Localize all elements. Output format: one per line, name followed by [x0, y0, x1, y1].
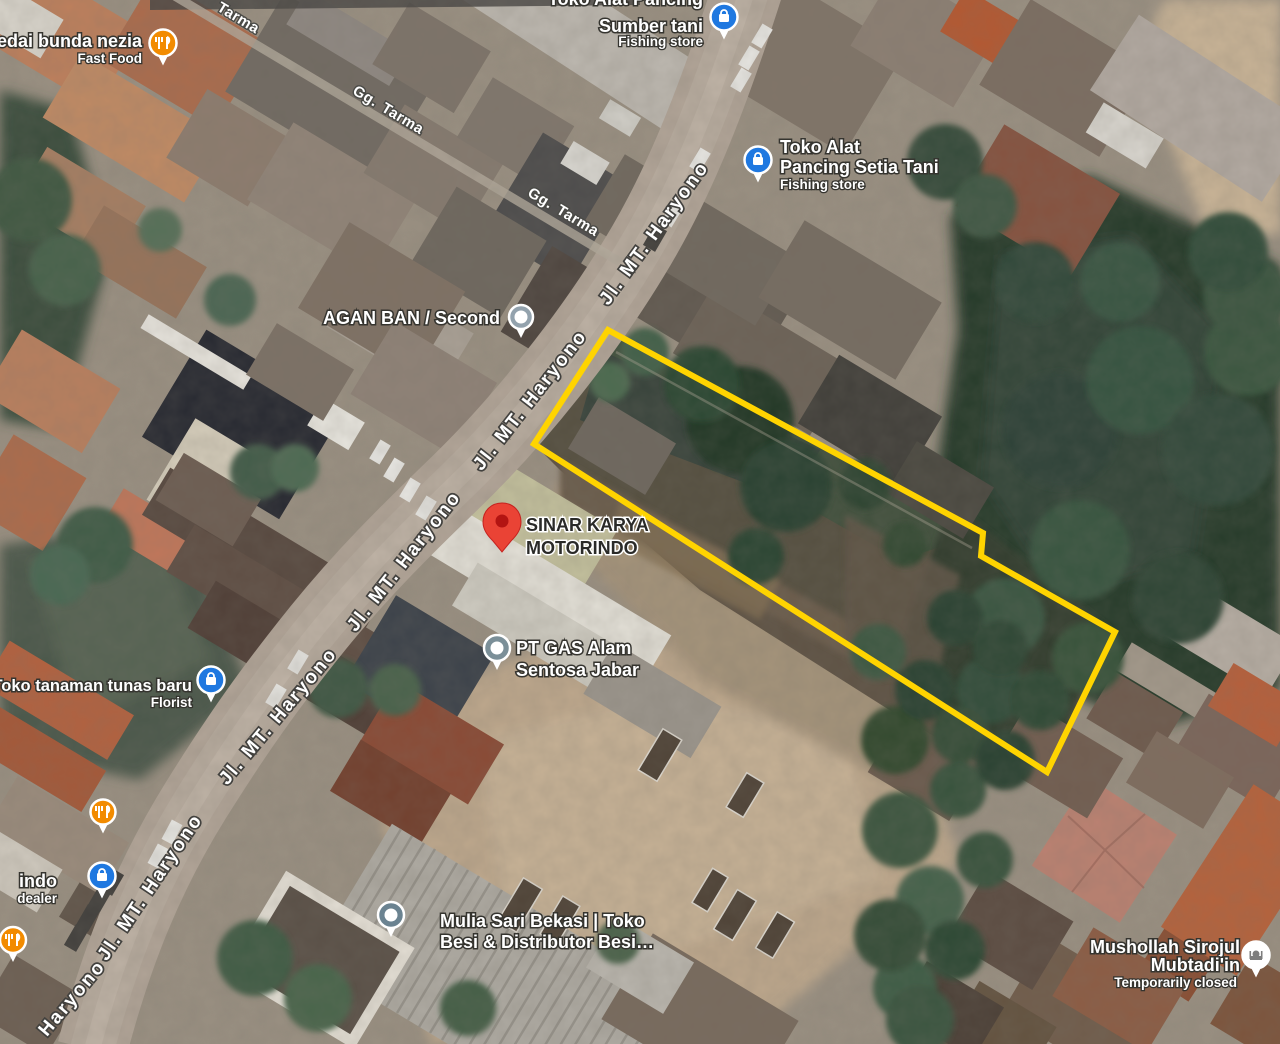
svg-text:Kedai bunda nezia: Kedai bunda nezia — [0, 31, 143, 51]
svg-text:Fast Food: Fast Food — [78, 51, 143, 66]
svg-text:Toko Alat Pancing: Toko Alat Pancing — [548, 0, 703, 9]
svg-text:MOTORINDO: MOTORINDO — [526, 538, 638, 558]
svg-text:Fishing store: Fishing store — [780, 177, 865, 192]
svg-text:Temporarily closed: Temporarily closed — [1114, 975, 1237, 990]
svg-text:Sumber tani: Sumber tani — [599, 16, 703, 36]
svg-text:Besi & Distributor Besi…: Besi & Distributor Besi… — [440, 932, 654, 952]
svg-text:Mubtadi'in: Mubtadi'in — [1151, 955, 1240, 975]
svg-text:AGAN BAN / Second: AGAN BAN / Second — [323, 308, 500, 328]
svg-text:Mushollah Sirojul: Mushollah Sirojul — [1090, 937, 1240, 957]
svg-text:Fishing store: Fishing store — [618, 34, 703, 49]
svg-text:Toko tanaman tunas baru: Toko tanaman tunas baru — [0, 677, 192, 695]
svg-text:dealer: dealer — [17, 891, 58, 906]
svg-text:PT GAS Alam: PT GAS Alam — [516, 638, 631, 658]
svg-text:Toko Alat: Toko Alat — [780, 137, 860, 157]
svg-text:SINAR KARYA: SINAR KARYA — [526, 515, 649, 535]
svg-text:Mulia Sari Bekasi | Toko: Mulia Sari Bekasi | Toko — [440, 911, 645, 931]
svg-text:Sentosa Jabar: Sentosa Jabar — [516, 660, 639, 680]
svg-text:indo: indo — [19, 871, 57, 891]
svg-text:Pancing Setia Tani: Pancing Setia Tani — [780, 157, 939, 177]
svg-text:Florist: Florist — [151, 695, 193, 710]
